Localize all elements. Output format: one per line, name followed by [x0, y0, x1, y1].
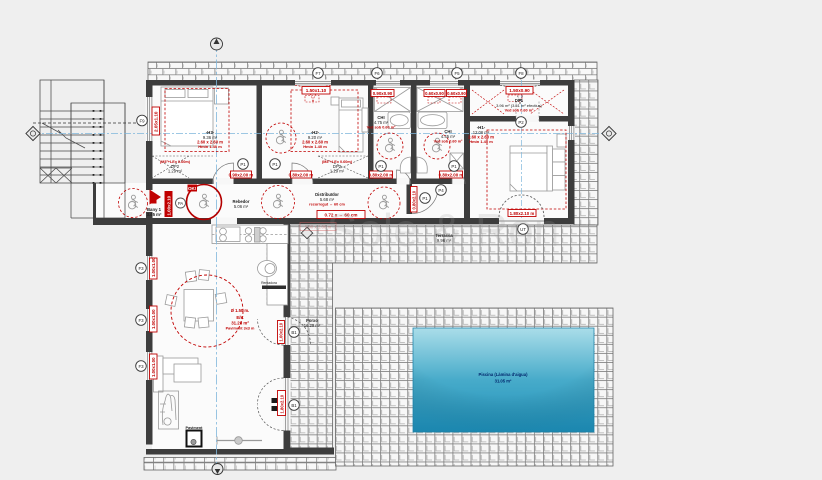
svg-text:4.75 m²: 4.75 m² [374, 120, 389, 125]
svg-text:P1: P1 [272, 162, 278, 167]
svg-text:1.00x1.00: 1.00x1.00 [151, 257, 156, 277]
svg-text:31.28 m²: 31.28 m² [231, 321, 249, 326]
svg-text:Rentadora: Rentadora [261, 281, 277, 285]
svg-text:P1: P1 [451, 164, 457, 169]
svg-text:Hmín 1.40 m: Hmín 1.40 m [303, 144, 327, 149]
svg-text:Paviment: Paviment [186, 426, 204, 430]
svg-text:F8: F8 [518, 71, 524, 76]
svg-text:P1: P1 [240, 162, 246, 167]
svg-text:F6: F6 [374, 71, 380, 76]
svg-text:F3: F3 [138, 364, 144, 369]
svg-text:1.80x2.10: 1.80x2.10 [280, 394, 285, 413]
svg-text:5.06 m²: 5.06 m² [234, 204, 249, 209]
svg-text:F3: F3 [138, 318, 144, 323]
svg-text:Hmín 1.40 m: Hmín 1.40 m [198, 144, 222, 149]
svg-text:Piscina (Làmina d'aigua): Piscina (Làmina d'aigua) [479, 372, 529, 377]
svg-text:1.29 m²: 1.29 m² [330, 169, 345, 174]
svg-text:P2: P2 [518, 120, 524, 125]
svg-text:P1: P1 [378, 164, 384, 169]
svg-text:P1: P1 [422, 196, 428, 201]
svg-text:PA: PA [178, 201, 183, 206]
svg-text:0.60x0.90: 0.60x0.90 [425, 91, 444, 96]
svg-text:F9: F9 [139, 119, 145, 124]
svg-text:1.50x0.90: 1.50x0.90 [509, 88, 530, 93]
svg-text:F5: F5 [454, 71, 460, 76]
svg-text:Ved sob 0.60 m²: Ved sob 0.60 m² [434, 140, 463, 144]
svg-text:3.45 m²: 3.45 m² [147, 212, 162, 217]
svg-text:Ø 1.50 m.: Ø 1.50 m. [231, 308, 250, 313]
svg-text:0.80x2.00 m: 0.80x2.00 m [369, 172, 394, 177]
svg-text:16.29 m²: 16.29 m² [304, 323, 321, 328]
svg-text:E/K: E/K [236, 315, 244, 320]
svg-text:4.45 m²: 4.45 m² [441, 134, 456, 139]
svg-text:0.60x0.90: 0.60x0.90 [447, 91, 466, 96]
svg-text:P4: P4 [438, 188, 444, 193]
svg-text:3.96 m² (3.51 m² efectius): 3.96 m² (3.51 m² efectius) [496, 103, 542, 108]
svg-text:1.00x2.10: 1.00x2.10 [279, 322, 284, 341]
svg-text:Ved sob 0.60 m²: Ved sob 0.60 m² [367, 126, 396, 130]
svg-text:31.05 m²: 31.05 m² [495, 379, 512, 384]
svg-text:OK!: OK! [188, 186, 197, 191]
svg-text:F7: F7 [315, 71, 321, 76]
svg-text:B1: B1 [291, 403, 297, 408]
svg-text:1.50x1.10: 1.50x1.10 [306, 88, 327, 93]
svg-text:2.05x1.10: 2.05x1.10 [154, 111, 159, 132]
svg-text:1.00x2.10: 1.00x2.10 [167, 195, 172, 215]
svg-text:1.00x1.00: 1.00x1.00 [151, 309, 156, 329]
svg-text:Paviment 3x3 m: Paviment 3x3 m [226, 327, 255, 331]
svg-text:0.90x0.90: 0.90x0.90 [373, 91, 393, 96]
svg-text:0.80x2.00 m: 0.80x2.00 m [439, 172, 464, 177]
svg-text:5.68 m²: 5.68 m² [320, 197, 335, 202]
svg-text:0.90x2.00 m: 0.90x2.00 m [229, 172, 254, 177]
svg-text:Sole & Ron: Sole & Ron [327, 204, 560, 256]
svg-text:0.80x2.00 m: 0.80x2.00 m [289, 172, 314, 177]
svg-text:1.00x1.00: 1.00x1.00 [151, 357, 156, 377]
svg-text:Hmín 1.40 m: Hmín 1.40 m [469, 139, 493, 144]
svg-text:1.29 m²: 1.29 m² [168, 169, 183, 174]
svg-text:F3: F3 [138, 266, 144, 271]
svg-text:B1: B1 [291, 330, 297, 335]
svg-text:Ved sob 0.60 m²: Ved sob 0.60 m² [505, 108, 534, 112]
